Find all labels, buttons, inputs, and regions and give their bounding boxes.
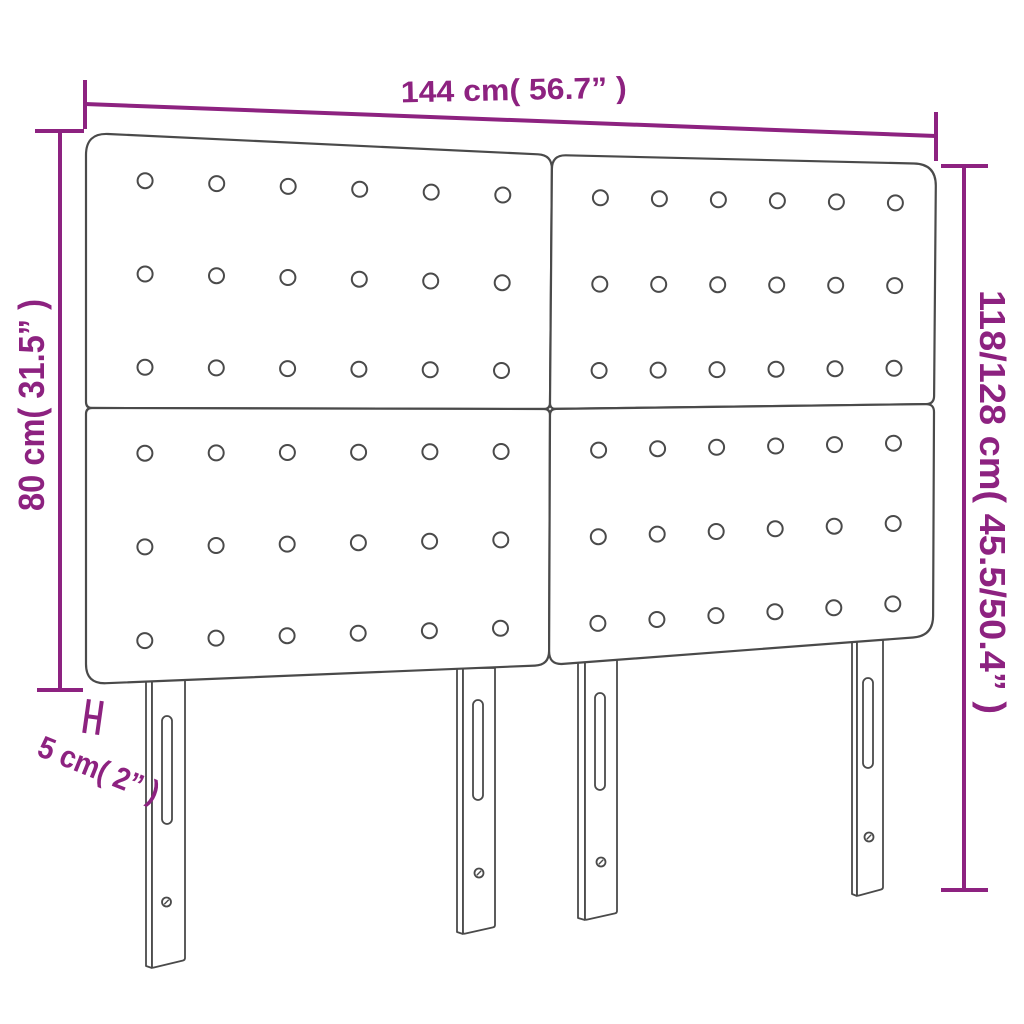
headboard-legs xyxy=(146,637,883,968)
tufting-button xyxy=(828,361,843,376)
tufting-button xyxy=(770,193,785,208)
tufting-button xyxy=(827,437,842,452)
tufting-button xyxy=(591,529,606,544)
tufting-button xyxy=(649,612,664,627)
tufting-button xyxy=(769,278,784,293)
tufting-button xyxy=(885,596,900,611)
tufting-button xyxy=(767,604,782,619)
tufting-button xyxy=(710,362,725,377)
tufting-button xyxy=(708,608,723,623)
tufting-button xyxy=(493,532,508,547)
tufting-button xyxy=(422,623,437,638)
tufting-button xyxy=(423,362,438,377)
tufting-button xyxy=(137,633,152,648)
tufting-button xyxy=(137,446,152,461)
tufting-button xyxy=(138,267,153,282)
tufting-button xyxy=(351,626,366,641)
tufting-button xyxy=(769,362,784,377)
panel-height-label: 80 cm( 31.5” ) xyxy=(11,299,52,511)
tufting-button xyxy=(280,445,295,460)
tufting-button xyxy=(590,616,605,631)
headboard-panels xyxy=(86,134,936,683)
tufting-button xyxy=(711,192,726,207)
tufting-button xyxy=(209,538,224,553)
headboard-dimension-diagram: 144 cm( 56.7” ) 80 cm( 31.5” ) 118/128 c… xyxy=(0,0,1024,1024)
tufting-button xyxy=(422,534,437,549)
tufting-button xyxy=(209,268,224,283)
tufting-button xyxy=(495,188,510,203)
tufting-button xyxy=(209,445,224,460)
depth-connector xyxy=(87,716,100,718)
tufting-button xyxy=(280,361,295,376)
tufting-button xyxy=(768,521,783,536)
tufting-button xyxy=(887,278,902,293)
tufting-button xyxy=(280,270,295,285)
tufting-button xyxy=(888,195,903,210)
depth-dimension-marker xyxy=(84,699,102,734)
panel-bottom-right xyxy=(549,404,934,664)
tufting-button xyxy=(650,527,665,542)
tufting-button xyxy=(494,444,509,459)
tufting-button xyxy=(137,539,152,554)
width-dimension-line xyxy=(85,104,936,136)
diagram-stage: 144 cm( 56.7” ) 80 cm( 31.5” ) 118/128 c… xyxy=(0,0,1024,1024)
tufting-button xyxy=(826,600,841,615)
tufting-button xyxy=(591,443,606,458)
tufting-button xyxy=(423,274,438,289)
leg-side-edge xyxy=(578,656,585,920)
tufting-button xyxy=(886,516,901,531)
tufting-button xyxy=(138,360,153,375)
tufting-button xyxy=(829,194,844,209)
tufting-button xyxy=(351,445,366,460)
panel-bottom-left xyxy=(86,408,550,683)
tufting-button xyxy=(828,278,843,293)
panel-top-left xyxy=(86,134,552,409)
width-label: 144 cm( 56.7” ) xyxy=(400,72,627,110)
leg-4 xyxy=(852,637,883,896)
leg-slot xyxy=(162,716,172,824)
tufting-button xyxy=(709,524,724,539)
tufting-button xyxy=(209,176,224,191)
total-height-label: 118/128 cm( 45.5/50.4” ) xyxy=(972,290,1013,714)
tufting-button xyxy=(422,444,437,459)
tufting-button xyxy=(352,182,367,197)
tufting-button xyxy=(209,631,224,646)
leg-slot xyxy=(863,678,873,768)
tufting-button xyxy=(351,362,366,377)
leg-1 xyxy=(146,680,185,968)
leg-2 xyxy=(457,668,495,934)
tufting-button xyxy=(651,363,666,378)
tufting-button xyxy=(593,190,608,205)
tufting-button xyxy=(138,173,153,188)
tufting-button xyxy=(768,439,783,454)
tufting-button xyxy=(281,179,296,194)
tufting-button xyxy=(887,361,902,376)
tufting-button xyxy=(280,537,295,552)
tufting-button xyxy=(652,191,667,206)
tufting-button xyxy=(592,363,607,378)
leg-slot xyxy=(595,693,605,790)
depth-label: 5 cm( 2” ) xyxy=(33,729,165,809)
tufting-button xyxy=(424,185,439,200)
tufting-button xyxy=(495,275,510,290)
tufting-button xyxy=(493,621,508,636)
tufting-button xyxy=(351,535,366,550)
leg-3 xyxy=(578,656,617,920)
tufting-button xyxy=(650,441,665,456)
tufting-button xyxy=(352,272,367,287)
tufting-button xyxy=(710,277,725,292)
tufting-button xyxy=(886,436,901,451)
tufting-button xyxy=(827,519,842,534)
tufting-button xyxy=(709,440,724,455)
leg-slot xyxy=(473,700,483,800)
tufting-button xyxy=(280,628,295,643)
tufting-button xyxy=(494,363,509,378)
tufting-button xyxy=(651,277,666,292)
tufting-button xyxy=(209,360,224,375)
tufting-button xyxy=(592,277,607,292)
